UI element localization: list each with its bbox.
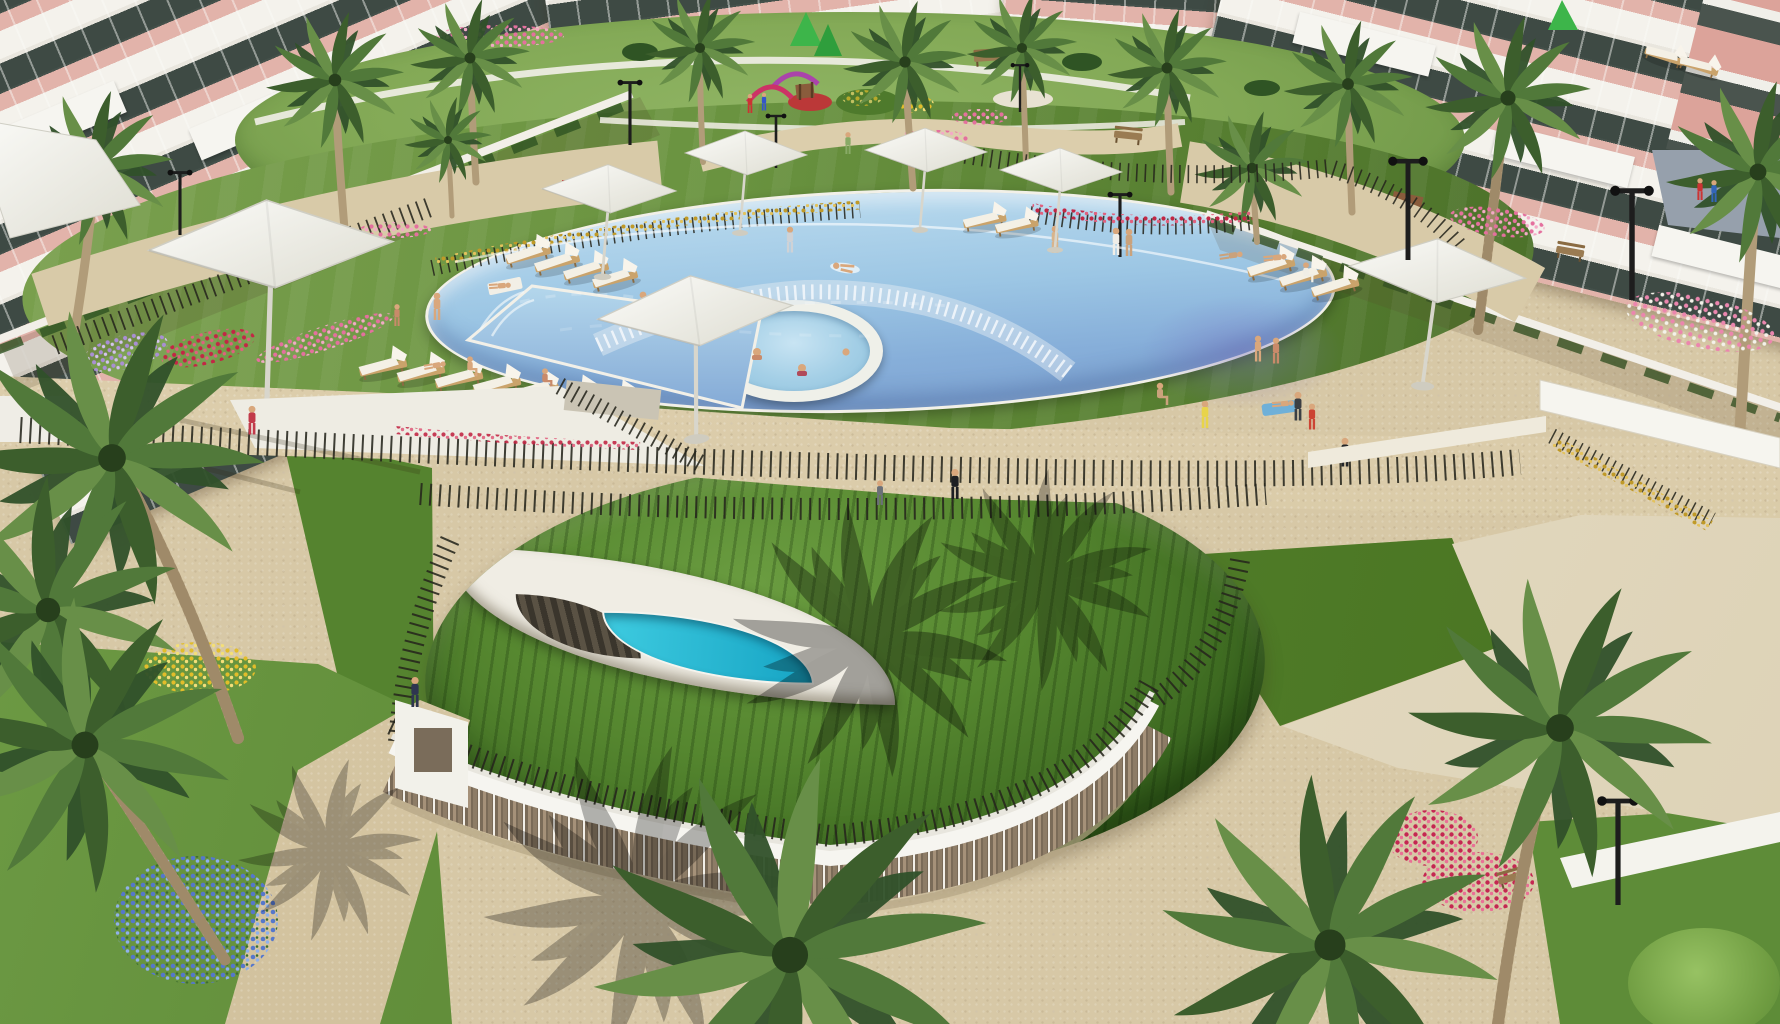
pool-details: [455, 224, 1282, 408]
detail-overlay: [0, 0, 1780, 1024]
resort-aerial-render: [0, 0, 1780, 1024]
walkway-items: [0, 380, 1520, 509]
jacuzzi-people: [752, 348, 850, 376]
